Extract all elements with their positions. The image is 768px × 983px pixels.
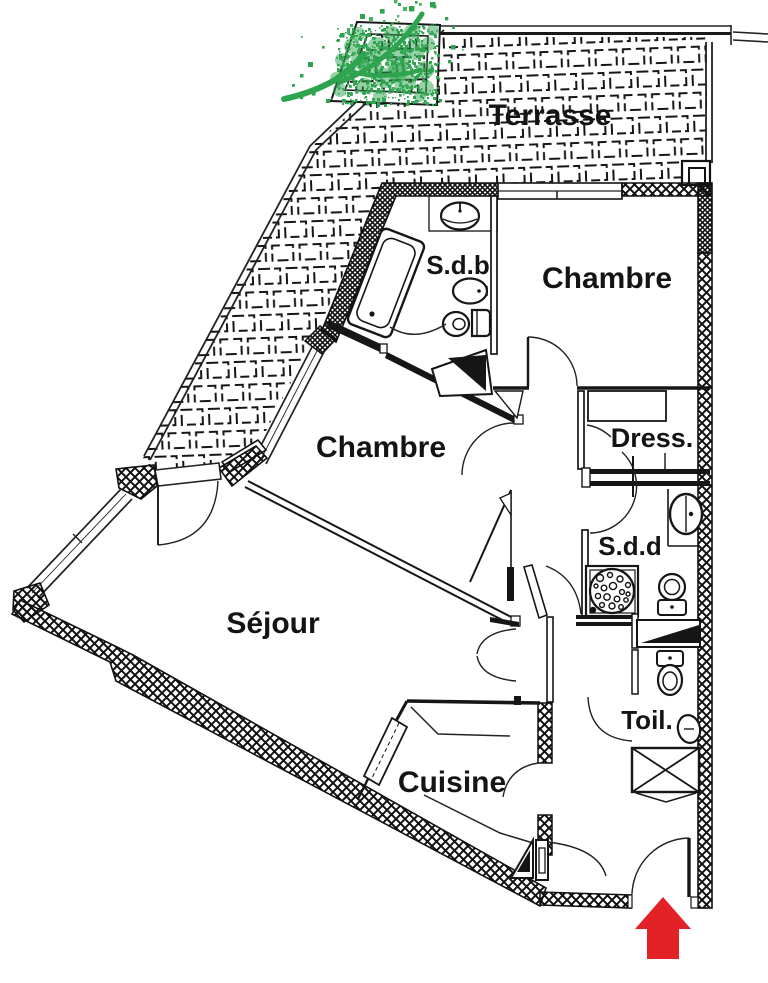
svg-text:Terrasse: Terrasse bbox=[489, 99, 612, 132]
svg-text:Toil.: Toil. bbox=[621, 705, 673, 735]
svg-text:Chambre: Chambre bbox=[542, 262, 672, 295]
svg-text:Séjour: Séjour bbox=[226, 607, 320, 640]
svg-text:S.d.b: S.d.b bbox=[426, 250, 490, 280]
svg-text:Chambre: Chambre bbox=[316, 431, 446, 464]
svg-text:S.d.d: S.d.d bbox=[598, 531, 662, 561]
svg-text:Dress.: Dress. bbox=[611, 423, 694, 453]
svg-text:Cuisine: Cuisine bbox=[398, 766, 506, 799]
